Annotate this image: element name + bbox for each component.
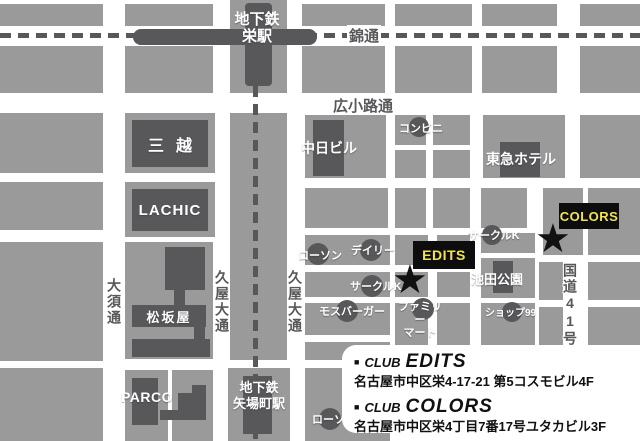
convenience-store-label: コンビニ	[399, 120, 443, 136]
city-block	[0, 368, 103, 441]
matsuzakaya-building	[165, 247, 205, 290]
city-block	[482, 4, 557, 26]
club-colors-name: COLORS	[406, 396, 493, 418]
city-block	[0, 4, 103, 26]
osu-street-label: 大須通	[104, 278, 124, 326]
club-colors-name-row: ■ CLUB COLORS	[354, 396, 616, 418]
colors-star-icon: ★	[535, 220, 571, 258]
circle-k-label-east: サークルK	[468, 227, 520, 243]
square-bullet-icon: ■	[354, 402, 359, 412]
mitsukoshi-label: 三越	[132, 120, 208, 167]
venue-info-box: ■ CLUB EDITS 名古屋市中区栄4-17-21 第5コスモビル4F ■ …	[342, 345, 628, 433]
city-block	[302, 46, 385, 93]
city-block	[0, 182, 103, 230]
club-edits-name-row: ■ CLUB EDITS	[354, 351, 616, 373]
city-block	[0, 46, 103, 93]
city-block	[305, 188, 388, 228]
city-block	[580, 115, 640, 178]
parco-label: PARCO	[121, 389, 173, 405]
city-block	[437, 272, 470, 297]
club-edits-address: 名古屋市中区栄4-17-21 第5コスモビル4F	[354, 374, 616, 391]
city-block	[395, 46, 472, 93]
club-edits-name: EDITS	[406, 351, 467, 373]
city-block	[433, 150, 470, 178]
hisaya-median-strip	[230, 113, 287, 360]
shop99-label: ショップ99	[485, 304, 536, 319]
matsuzakaya-building	[132, 339, 210, 357]
city-block	[0, 113, 103, 173]
nishiki-street-label: 錦通	[347, 25, 381, 46]
hisaya-street-label-west: 久屋大通	[212, 270, 232, 334]
lachic-label: LACHIC	[132, 189, 208, 231]
edits-star-icon: ★	[392, 261, 428, 299]
city-block	[125, 46, 213, 93]
city-block	[580, 4, 640, 26]
city-block	[482, 46, 557, 93]
parco-building	[160, 410, 180, 420]
chunichi-building-label: 中日ビル	[301, 138, 357, 158]
route41-street-label: 国道41号	[560, 263, 580, 347]
square-bullet-icon: ■	[354, 357, 359, 367]
city-block	[481, 188, 527, 228]
yabacho-station-label: 地下鉄 矢場町駅	[222, 380, 296, 413]
city-block	[125, 4, 213, 26]
city-block	[0, 242, 103, 361]
city-block	[302, 4, 385, 26]
city-block	[588, 307, 640, 345]
matsuzakaya-building	[174, 290, 185, 306]
sakae-area-map: 錦通 広小路通 大須通 久屋大通 久屋大通 国道41号 地下鉄 栄駅 地下鉄 矢…	[0, 0, 640, 441]
city-block	[580, 46, 640, 93]
city-block	[433, 188, 470, 228]
sakae-station-label: 地下鉄 栄駅	[220, 12, 294, 45]
city-block	[395, 188, 426, 228]
club-prefix: CLUB	[364, 356, 400, 371]
tokyu-hotel-label: 東急ホテル	[486, 149, 556, 169]
hisaya-street-label-east: 久屋大通	[285, 270, 305, 334]
hirokoji-street-label: 広小路通	[333, 95, 393, 116]
city-block	[588, 262, 640, 300]
city-block	[395, 4, 472, 26]
daily-store-label: デイリー	[351, 242, 395, 258]
mos-burger-label: モスバーガー	[319, 303, 385, 319]
city-block	[395, 150, 426, 178]
ikeda-park-label: 池田公園	[471, 269, 523, 288]
club-prefix: CLUB	[364, 401, 400, 416]
parco-building	[192, 385, 206, 418]
matsuzakaya-label: 松坂屋	[132, 305, 206, 327]
family-mart-label: ファミリー マート	[393, 301, 447, 341]
club-colors-address: 名古屋市中区栄4丁目7番17号ユタカビル3F	[354, 419, 616, 436]
subway-line-horizontal	[0, 33, 640, 38]
lawson-label: ローソン	[298, 247, 342, 263]
